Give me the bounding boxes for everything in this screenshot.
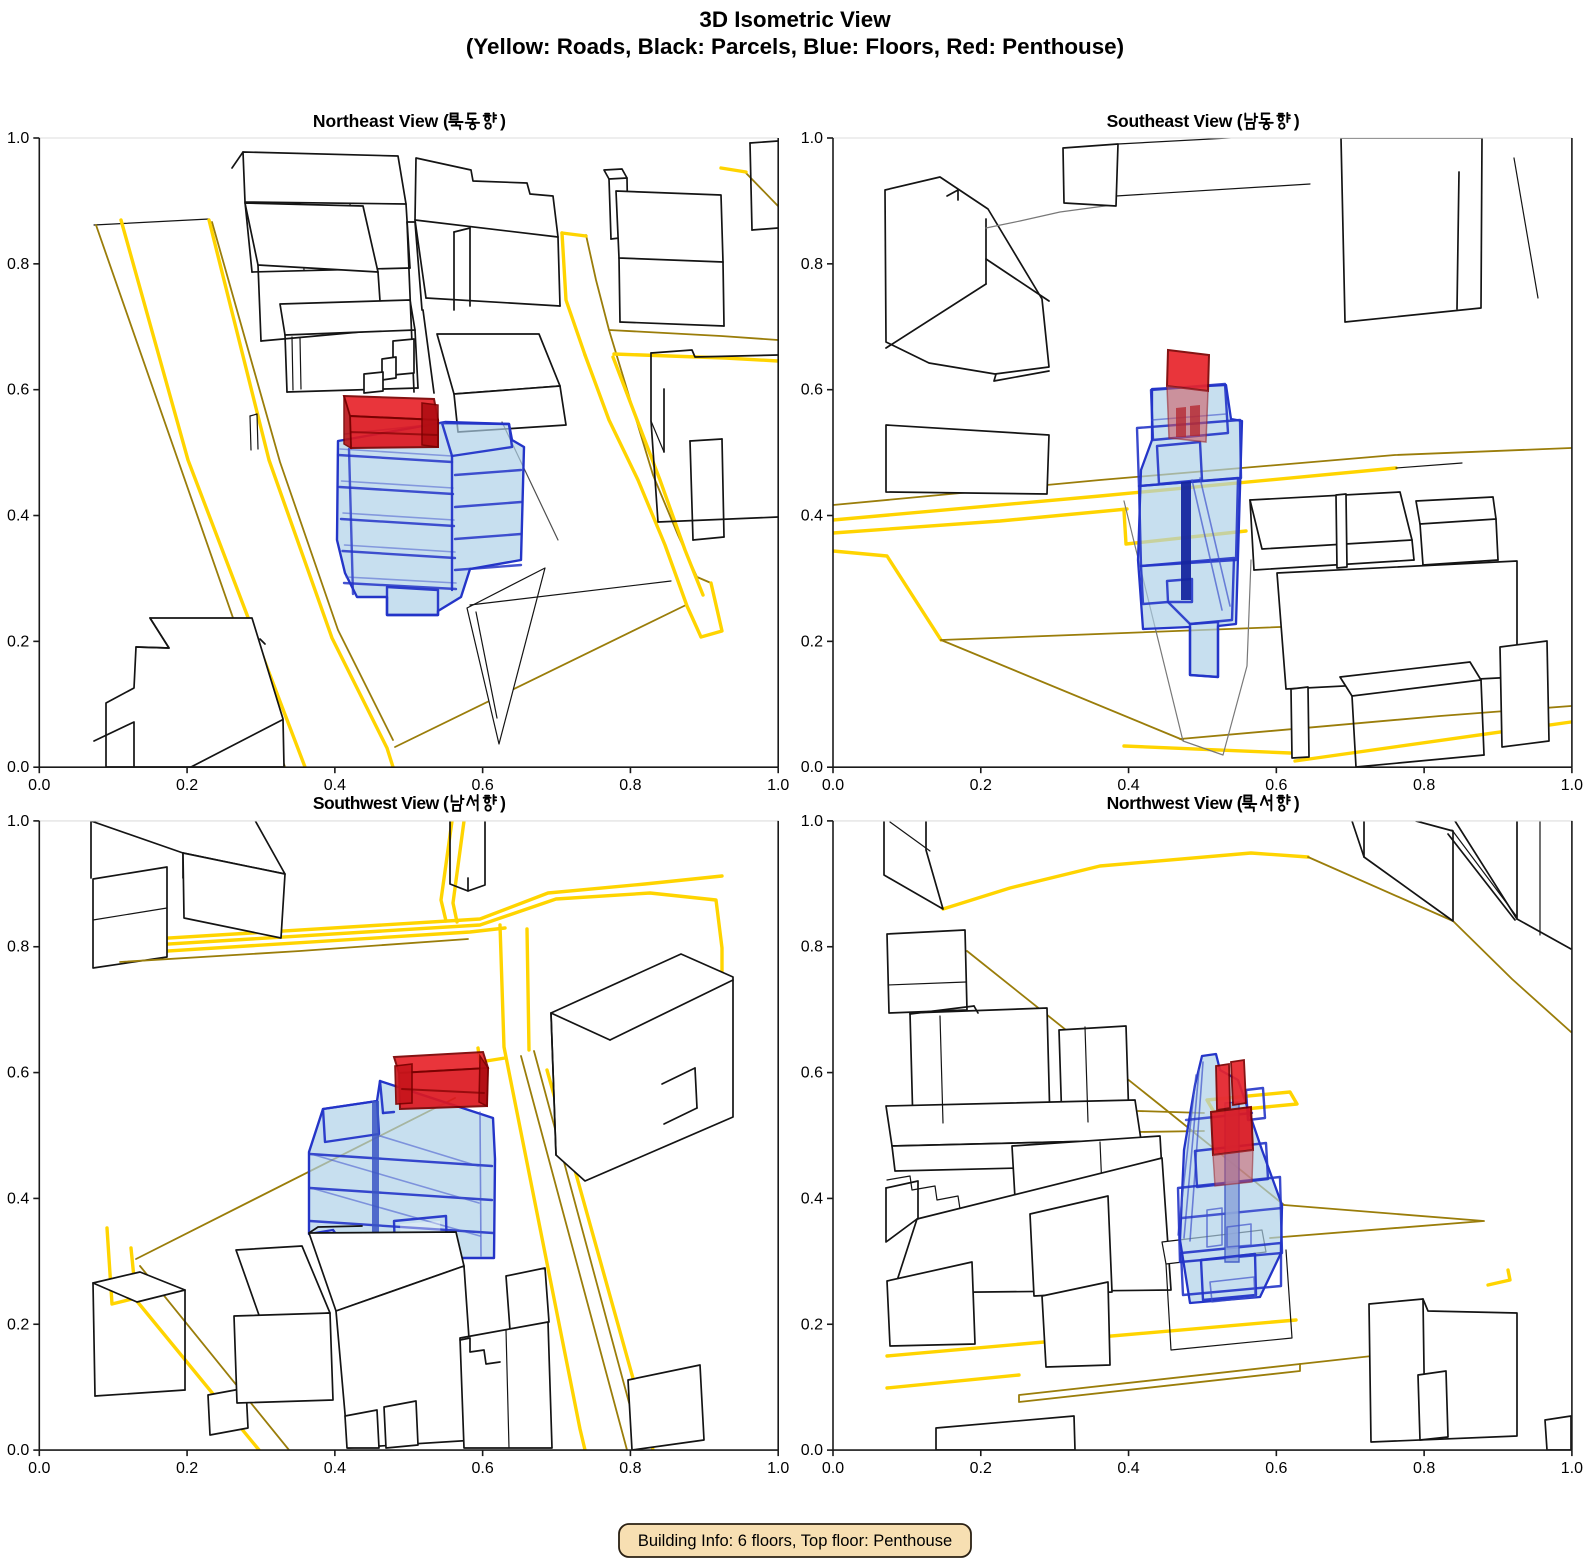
svg-text:0.0: 0.0: [801, 1442, 823, 1459]
svg-text:0.4: 0.4: [324, 777, 346, 794]
svg-text:): ): [500, 111, 506, 131]
svg-text:Northeast View (: Northeast View (: [313, 111, 449, 131]
svg-text:0.4: 0.4: [801, 1190, 823, 1207]
svg-text:0.6: 0.6: [1265, 1460, 1287, 1477]
svg-text:0.4: 0.4: [1117, 777, 1139, 794]
svg-text:0.8: 0.8: [801, 939, 823, 956]
svg-text:0.0: 0.0: [822, 777, 844, 794]
svg-text:1.0: 1.0: [7, 130, 29, 147]
svg-text:0.8: 0.8: [7, 939, 29, 956]
svg-text:0.0: 0.0: [822, 1460, 844, 1477]
svg-text:0.2: 0.2: [970, 777, 992, 794]
svg-text:0.0: 0.0: [28, 1460, 50, 1477]
svg-text:1.0: 1.0: [767, 777, 789, 794]
svg-text:0.0: 0.0: [28, 777, 50, 794]
svg-text:Building Info: 6 floors, Top f: Building Info: 6 floors, Top floor: Pent…: [638, 1532, 952, 1550]
svg-text:1.0: 1.0: [801, 813, 823, 830]
svg-text:0.4: 0.4: [7, 1190, 29, 1207]
svg-text:0.8: 0.8: [7, 256, 29, 273]
svg-text:0.4: 0.4: [1117, 1460, 1139, 1477]
svg-text:1.0: 1.0: [801, 130, 823, 147]
svg-text:0.4: 0.4: [801, 508, 823, 525]
svg-text:0.6: 0.6: [7, 1065, 29, 1082]
svg-text:0.4: 0.4: [7, 508, 29, 525]
svg-text:0.0: 0.0: [801, 759, 823, 776]
svg-text:0.0: 0.0: [7, 759, 29, 776]
svg-text:1.0: 1.0: [1561, 1460, 1583, 1477]
svg-text:0.8: 0.8: [619, 1460, 641, 1477]
svg-text:(Yellow: Roads, Black: Parcels: (Yellow: Roads, Black: Parcels, Blue: Fl…: [466, 34, 1124, 59]
svg-text:0.6: 0.6: [472, 777, 494, 794]
svg-text:0.2: 0.2: [7, 1316, 29, 1333]
svg-text:0.2: 0.2: [801, 1316, 823, 1333]
svg-text:0.2: 0.2: [801, 633, 823, 650]
svg-text:1.0: 1.0: [7, 813, 29, 830]
svg-text:0.6: 0.6: [1265, 777, 1287, 794]
svg-text:1.0: 1.0: [767, 1460, 789, 1477]
svg-text:Southwest View (: Southwest View (: [313, 793, 449, 813]
svg-text:Northwest View (: Northwest View (: [1107, 793, 1243, 813]
svg-text:0.2: 0.2: [176, 777, 198, 794]
svg-text:0.6: 0.6: [801, 1065, 823, 1082]
svg-text:0.4: 0.4: [324, 1460, 346, 1477]
svg-text:0.0: 0.0: [7, 1442, 29, 1459]
svg-text:0.8: 0.8: [1413, 1460, 1435, 1477]
svg-text:Southeast View (: Southeast View (: [1107, 111, 1243, 131]
svg-text:): ): [1294, 111, 1300, 131]
svg-text:): ): [500, 793, 506, 813]
svg-text:0.8: 0.8: [1413, 777, 1435, 794]
svg-text:0.2: 0.2: [176, 1460, 198, 1477]
svg-text:0.8: 0.8: [619, 777, 641, 794]
svg-text:): ): [1294, 793, 1300, 813]
svg-text:1.0: 1.0: [1561, 777, 1583, 794]
svg-text:0.6: 0.6: [472, 1460, 494, 1477]
svg-text:0.8: 0.8: [801, 256, 823, 273]
svg-text:3D Isometric View: 3D Isometric View: [699, 7, 891, 32]
svg-text:0.6: 0.6: [7, 382, 29, 399]
svg-text:0.2: 0.2: [970, 1460, 992, 1477]
svg-text:0.2: 0.2: [7, 633, 29, 650]
svg-text:0.6: 0.6: [801, 382, 823, 399]
